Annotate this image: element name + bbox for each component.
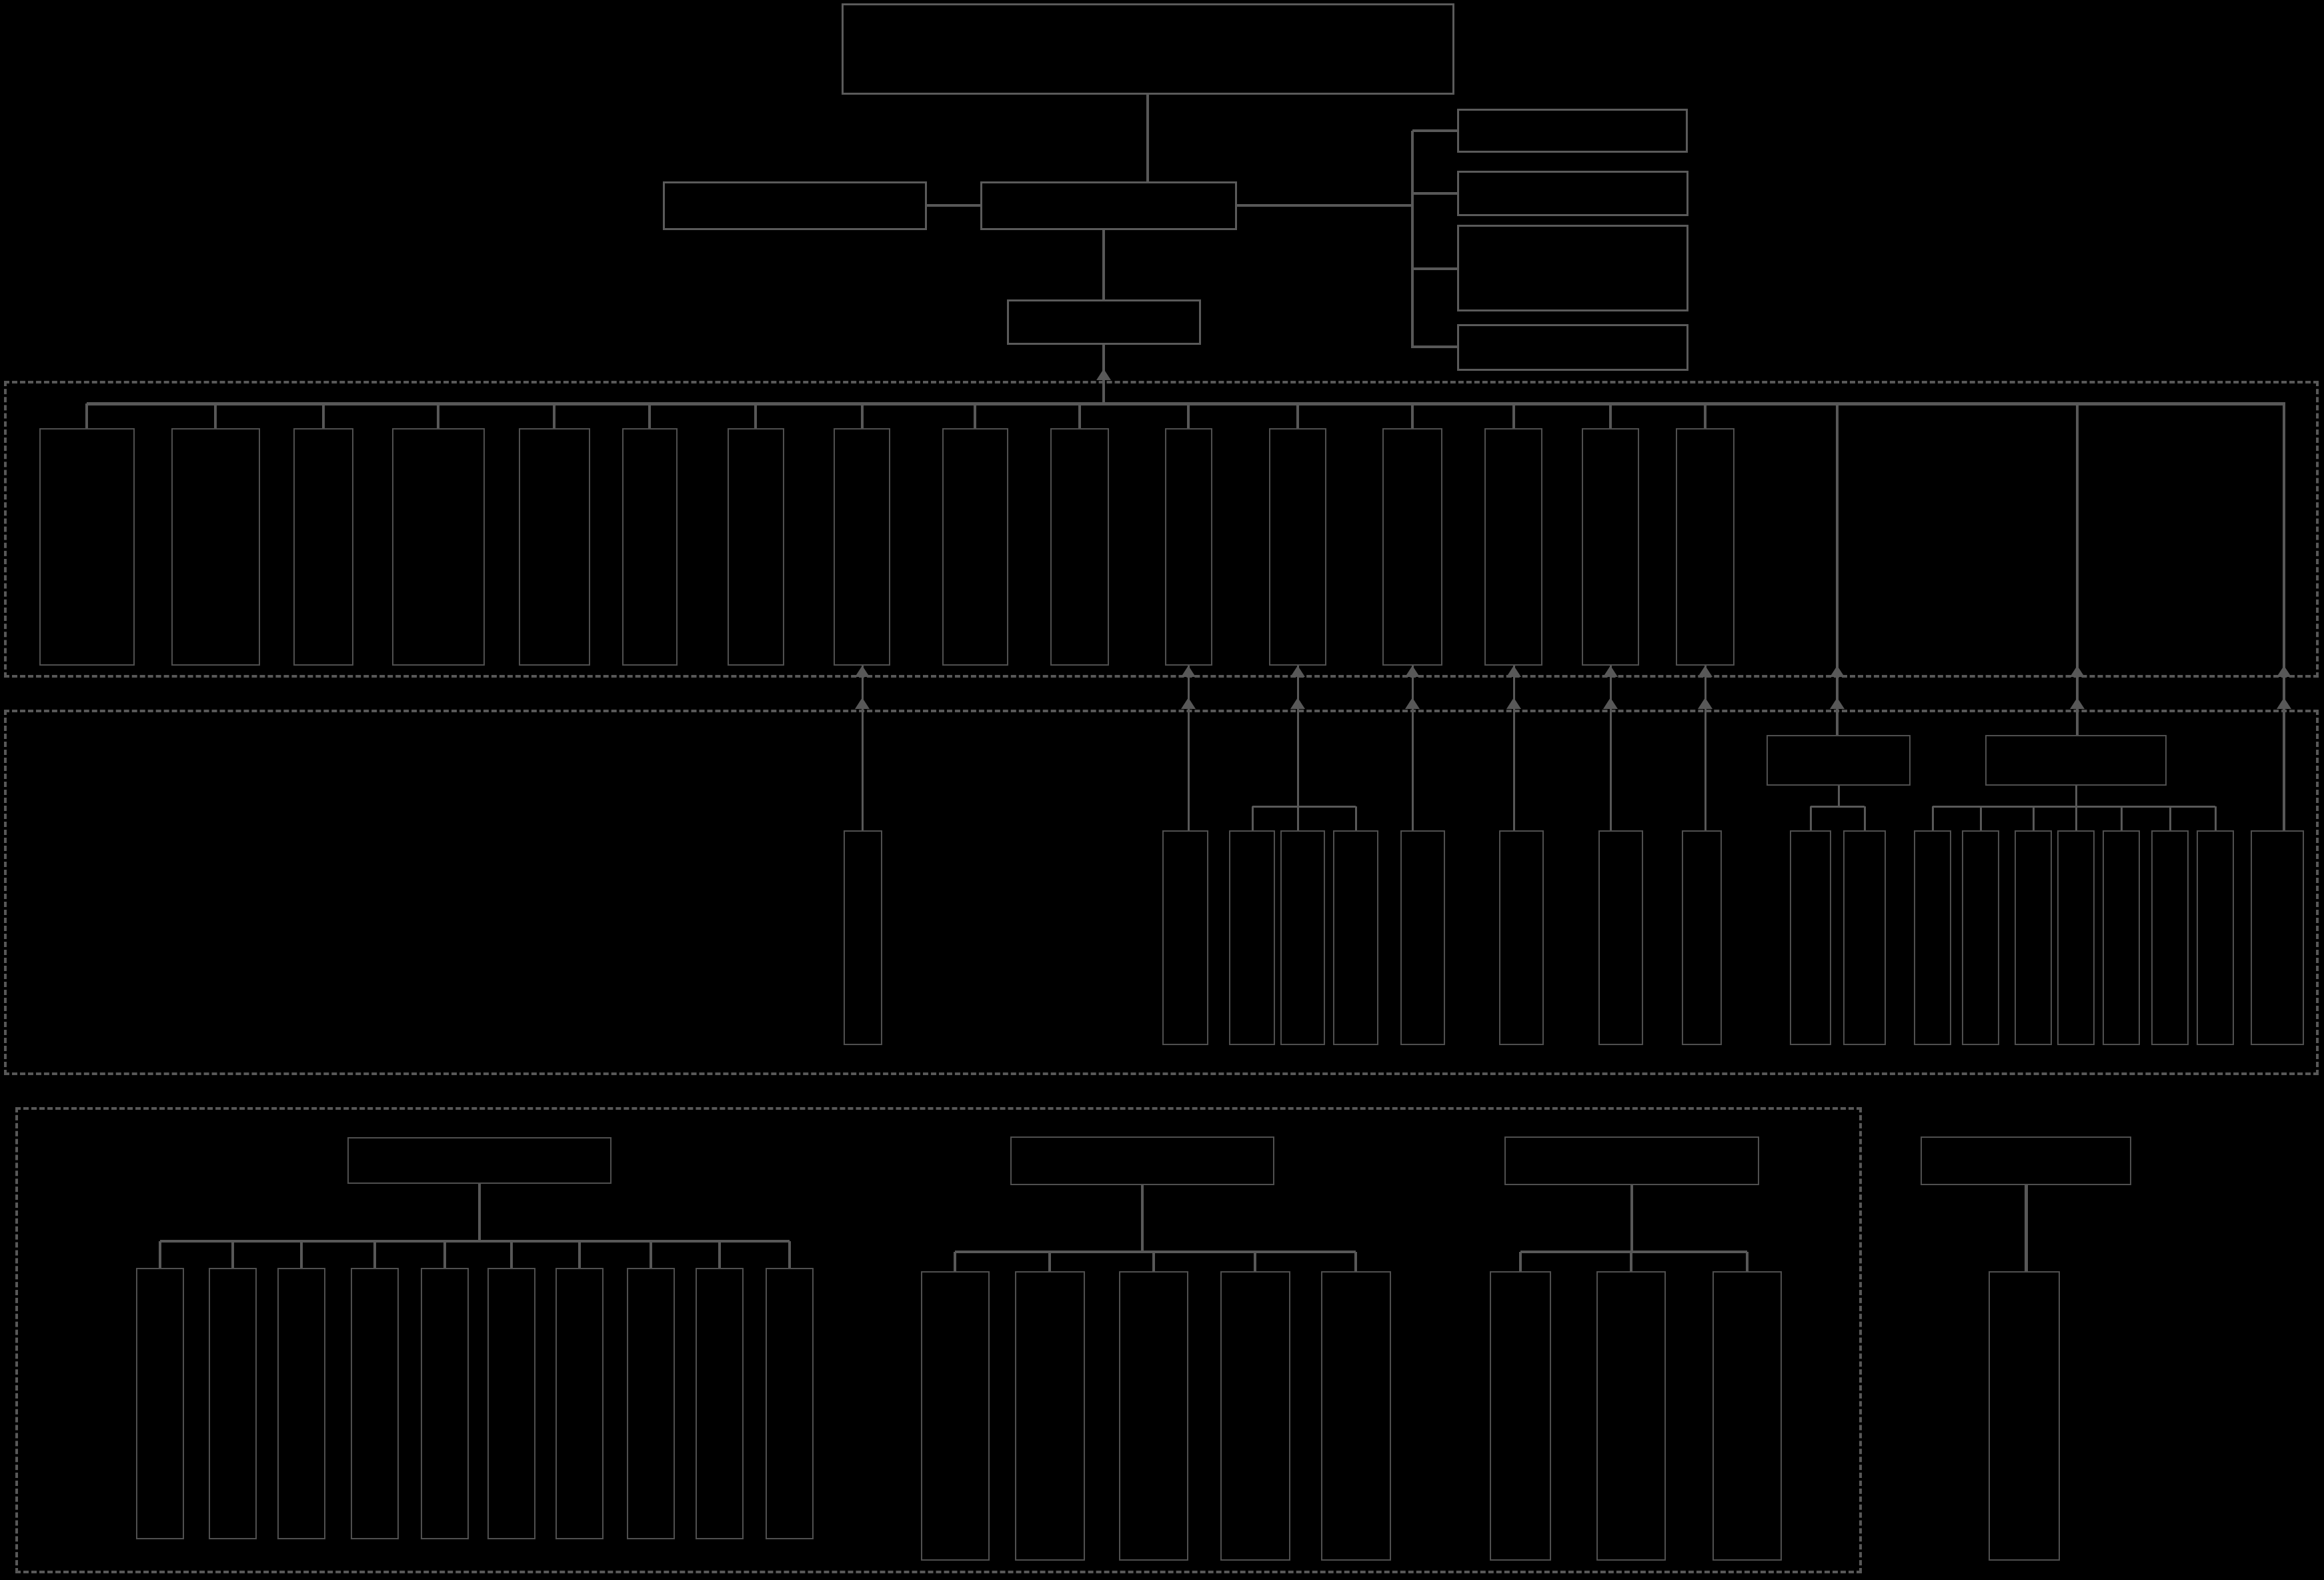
t1-drop-1	[85, 404, 88, 429]
spine-to-g2-header	[2076, 404, 2079, 735]
up-arrow	[2070, 666, 2085, 677]
tier2-box-6	[1499, 830, 1544, 1045]
tier2-group2-header	[1985, 735, 2167, 786]
tier1-box-16	[1676, 428, 1734, 666]
g2h-drop-3	[2033, 806, 2035, 830]
tier1-box-13	[1382, 428, 1442, 666]
tier2-box-13	[2015, 830, 2052, 1045]
tier2-box-5	[1400, 830, 1445, 1045]
side-stub-1	[1412, 129, 1457, 132]
tier3-g1-box-6	[487, 1268, 535, 1539]
up-arrow	[1181, 666, 1196, 677]
up-arrow	[1181, 698, 1196, 709]
t1-drop-13	[1411, 404, 1414, 429]
t1-drop-5	[553, 404, 555, 429]
t1-drop-11	[1187, 404, 1190, 429]
tier3-g1-box-9	[696, 1268, 744, 1539]
up-arrow	[1506, 666, 1521, 677]
tier3-g1-box-7	[555, 1268, 604, 1539]
tier2-box-17	[2197, 830, 2234, 1045]
side-stack-box-3	[1457, 225, 1688, 311]
t1b8-to-t2	[862, 666, 864, 830]
tier2-right-box	[2251, 830, 2304, 1045]
row2-to-row3	[1102, 230, 1105, 299]
t1b14-to-t2	[1513, 666, 1515, 830]
t1-drop-8	[861, 404, 864, 429]
t1-drop-15	[1609, 404, 1612, 429]
tier3-g2-box-1	[921, 1271, 990, 1561]
side-stack-box-1	[1457, 109, 1688, 153]
row2-left-box	[663, 181, 927, 230]
tier2-box-15	[2103, 830, 2140, 1045]
g2h-drop-6	[2215, 806, 2217, 830]
row2-right-link	[1237, 204, 1412, 207]
t3g1-bus	[160, 1240, 790, 1243]
tier2-box-3	[1280, 830, 1325, 1045]
g2h-drop-2	[1980, 806, 1982, 830]
row3-box	[1007, 299, 1201, 345]
t3g4-header-down	[2025, 1185, 2028, 1271]
tier3-g3-box-3	[1712, 1271, 1782, 1561]
tier1-spine	[87, 402, 2285, 406]
g2h-bracket	[1933, 806, 2215, 808]
t1-drop-14	[1512, 404, 1515, 429]
g1h-drop-2	[1864, 806, 1866, 830]
tier3-g1-box-1	[136, 1268, 184, 1539]
t1-drop-3	[322, 404, 325, 429]
tier2-box-10	[1843, 830, 1886, 1045]
root-to-row2	[1146, 95, 1149, 181]
row2-left-link	[927, 204, 980, 207]
tier1-box-4	[392, 428, 485, 666]
t1b16-to-t2	[1704, 666, 1706, 830]
up-arrow	[1506, 698, 1521, 709]
tier1-box-12	[1269, 428, 1326, 666]
tier1-box-3	[293, 428, 353, 666]
tier1-box-9	[942, 428, 1008, 666]
up-arrow	[1830, 698, 1845, 709]
t1b13-to-t2	[1412, 666, 1414, 830]
up-arrow	[2070, 698, 2085, 709]
tier3-group1-header	[347, 1137, 612, 1184]
up-arrow	[1290, 666, 1305, 677]
tier3-g2-box-5	[1321, 1271, 1391, 1561]
tier3-g1-box-8	[627, 1268, 675, 1539]
org-chart-canvas	[0, 0, 2324, 1580]
tier1-box-8	[834, 428, 890, 666]
row2-center-box	[980, 181, 1237, 230]
t3g1-header-down	[478, 1184, 481, 1241]
tier3-group3-header	[1504, 1136, 1759, 1185]
tier3-g1-box-3	[277, 1268, 325, 1539]
tier3-g4-box-1	[1989, 1271, 2060, 1561]
t1-drop-7	[754, 404, 757, 429]
tier2-box-16	[2151, 830, 2189, 1045]
tier2-single-box	[844, 830, 882, 1045]
spine-to-g1-header	[1836, 404, 1839, 735]
g2h-drop-4	[2121, 806, 2123, 830]
tier1-box-2	[171, 428, 260, 666]
tier1-box-7	[728, 428, 784, 666]
g2h-drop-5	[2169, 806, 2171, 830]
side-stack-box-4	[1457, 324, 1688, 371]
t1-drop-12	[1296, 404, 1299, 429]
tier2-box-4	[1333, 830, 1378, 1045]
up-arrow	[2277, 698, 2291, 709]
t3g3-bus	[1520, 1251, 1747, 1253]
g2h-drop-1	[1932, 806, 1934, 830]
t3g2-bus	[955, 1251, 1356, 1253]
up-arrow	[855, 698, 870, 709]
tier2-box-1	[1162, 830, 1208, 1045]
tier2-box-2	[1229, 830, 1275, 1045]
up-arrow	[1290, 698, 1305, 709]
tier1-box-15	[1582, 428, 1639, 666]
t2-bl-drop-2	[1355, 806, 1357, 830]
g2h-down	[2075, 786, 2077, 830]
up-arrow	[855, 666, 870, 677]
tier1-box-11	[1165, 428, 1212, 666]
tier1-box-10	[1050, 428, 1109, 666]
t1-drop-10	[1078, 404, 1081, 429]
g1h-drop-1	[1810, 806, 1812, 830]
t1-drop-9	[974, 404, 976, 429]
tier1-box-14	[1484, 428, 1542, 666]
up-arrow	[1405, 666, 1420, 677]
t2-bracket-left	[1252, 806, 1356, 808]
tier2-box-11	[1914, 830, 1951, 1045]
tier2-box-14	[2057, 830, 2095, 1045]
tier3-g1-box-5	[421, 1268, 469, 1539]
tier3-g3-box-1	[1490, 1271, 1551, 1561]
tier2-box-7	[1598, 830, 1643, 1045]
tier1-box-5	[519, 428, 590, 666]
tier3-g2-box-3	[1119, 1271, 1188, 1561]
t3g3-header-down	[1630, 1185, 1633, 1252]
t2-bl-drop-1	[1252, 806, 1254, 830]
tier3-g1-box-2	[209, 1268, 257, 1539]
up-arrow	[1405, 698, 1420, 709]
side-stack-spine	[1411, 131, 1414, 348]
tier3-g3-box-2	[1596, 1271, 1666, 1561]
tier3-group4-header	[1921, 1136, 2131, 1185]
t1b11-to-t2	[1188, 666, 1190, 830]
tier2-group1-header	[1767, 735, 1911, 786]
side-stack-box-2	[1457, 171, 1688, 216]
t1-drop-6	[648, 404, 651, 429]
tier3-g2-box-2	[1015, 1271, 1085, 1561]
t3g2-header-down	[1141, 1185, 1144, 1252]
tier2-box-12	[1962, 830, 1999, 1045]
tier2-box-8	[1682, 830, 1722, 1045]
side-stub-4	[1412, 345, 1457, 348]
t1b15-to-t2	[1610, 666, 1612, 830]
spine-to-right-box	[2283, 404, 2285, 830]
up-arrow	[1830, 666, 1845, 677]
up-arrow	[1603, 698, 1618, 709]
tier3-g1-box-10	[766, 1268, 814, 1539]
side-stub-3	[1412, 267, 1457, 270]
tier1-box-1	[39, 428, 135, 666]
g1h-down	[1838, 786, 1840, 806]
tier2-box-9	[1790, 830, 1831, 1045]
tier1-box-6	[622, 428, 678, 666]
root-box	[842, 3, 1454, 95]
up-arrow	[1603, 666, 1618, 677]
t1-drop-2	[214, 404, 217, 429]
tier3-g1-box-4	[351, 1268, 399, 1539]
g1h-bracket	[1811, 806, 1865, 808]
up-arrow	[2277, 666, 2291, 677]
side-stub-2	[1412, 192, 1457, 195]
up-arrow	[1698, 698, 1712, 709]
arrow-row3-spine	[1096, 369, 1111, 380]
up-arrow	[1698, 666, 1712, 677]
tier3-group2-header	[1010, 1136, 1274, 1185]
t1-drop-16	[1704, 404, 1706, 429]
tier3-g2-box-4	[1220, 1271, 1290, 1561]
t1-drop-4	[437, 404, 439, 429]
